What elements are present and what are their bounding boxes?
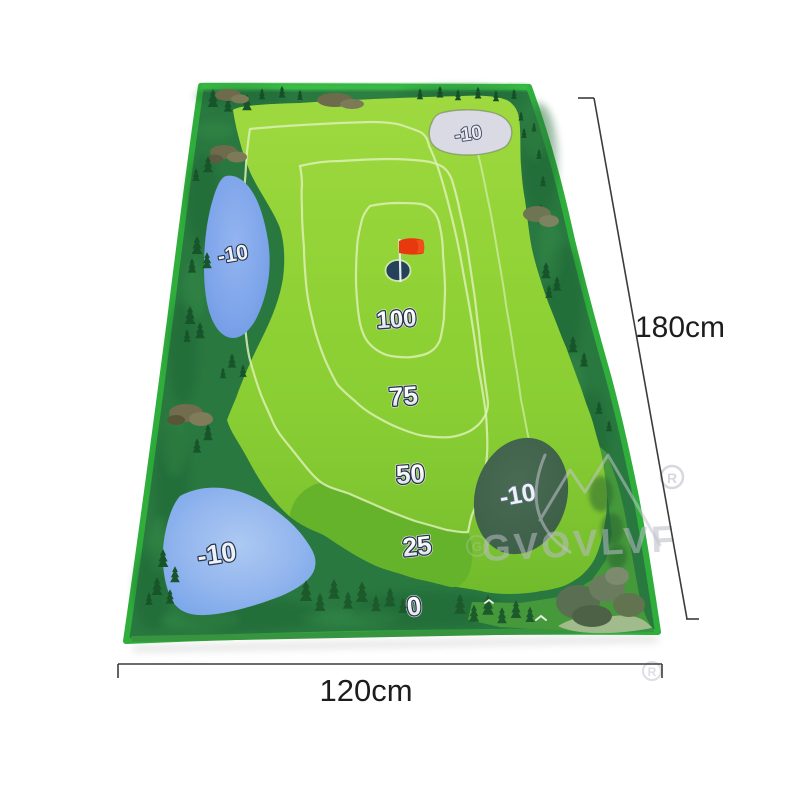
svg-text:50: 50 [395, 458, 426, 490]
svg-text:120cm: 120cm [319, 673, 412, 708]
svg-text:100: 100 [376, 305, 418, 335]
svg-text:-10: -10 [195, 537, 238, 572]
svg-text:75: 75 [388, 380, 419, 412]
svg-text:180cm: 180cm [635, 311, 725, 344]
svg-text:R: R [648, 665, 657, 679]
svg-text:-10: -10 [453, 122, 483, 147]
svg-text:R: R [667, 470, 677, 486]
svg-text:G: G [472, 539, 482, 554]
svg-text:25: 25 [401, 530, 433, 563]
